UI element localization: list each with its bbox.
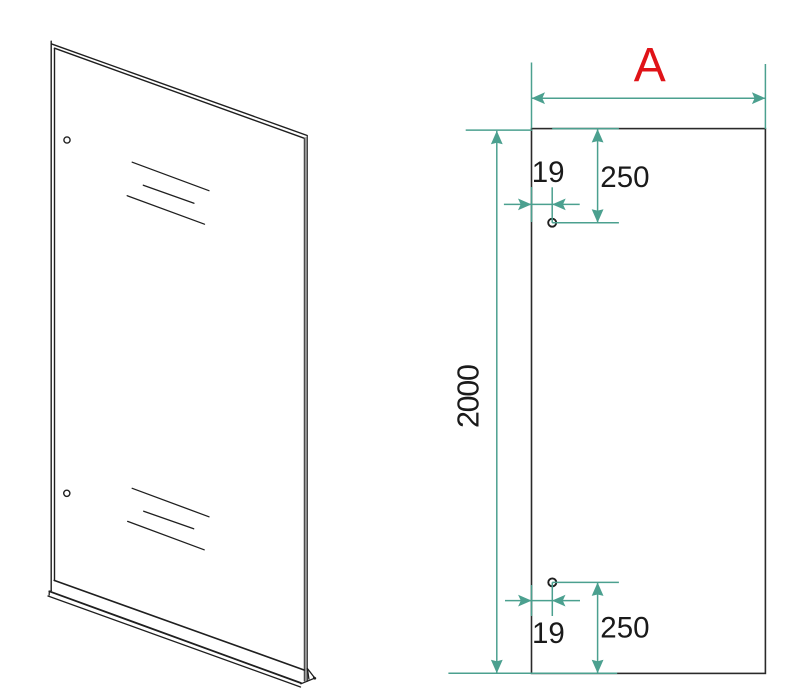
svg-text:250: 250 (600, 161, 649, 194)
svg-text:A: A (634, 39, 666, 92)
svg-text:19: 19 (532, 156, 565, 189)
svg-text:19: 19 (532, 617, 565, 650)
svg-text:2000: 2000 (452, 365, 486, 428)
svg-text:250: 250 (600, 612, 649, 645)
